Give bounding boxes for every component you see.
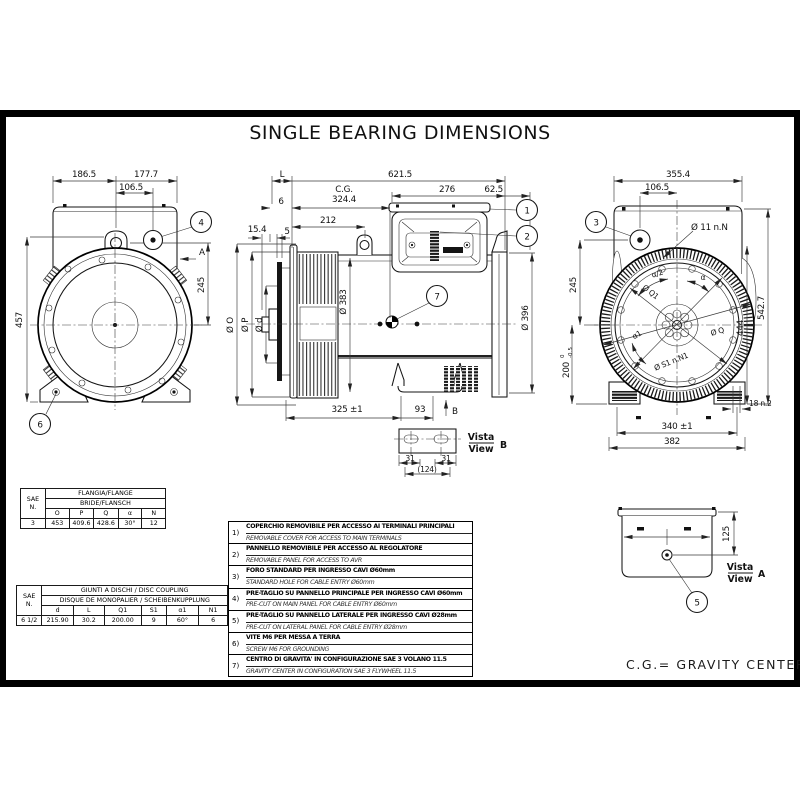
dim-444: 444	[736, 319, 746, 336]
coupling-data-row: 6 1/2 215.90 30.2 200.00 9 60° 6	[17, 616, 228, 626]
svg-text:2: 2	[524, 233, 529, 243]
val-q1: 200.00	[104, 616, 141, 626]
dim-124: (124)	[417, 465, 436, 474]
val-l: 30.2	[73, 616, 104, 626]
cg-label: C.G.	[335, 185, 353, 195]
view-a-detail: 125 Vista View A 5	[618, 507, 766, 613]
side-view-drawing: L 621.5 276 62.5 C.G. 324.4 6 212 15.4 5	[246, 170, 538, 421]
coupling-header-en: GIUNTI A DISCHI / DISC COUPLING	[42, 586, 228, 596]
screw-dot	[162, 204, 166, 208]
view-b-letter: B	[500, 440, 507, 451]
col-p: P	[69, 509, 93, 519]
front-view-drawing: 186.5 177.7 106.5 457 245 A 4	[15, 170, 212, 435]
dim-621-5: 621.5	[388, 170, 412, 180]
alpha: α	[701, 273, 706, 282]
vista-label-b: Vista	[468, 432, 494, 443]
val-alpha: 30°	[118, 519, 142, 529]
svg-text:200: 200	[562, 361, 572, 378]
dia-p: Ø P	[240, 318, 251, 332]
val-o: 453	[45, 519, 69, 529]
terminal-box-lid	[389, 203, 490, 212]
flange-header-fr: BRIDE/FLANSCH	[45, 499, 165, 509]
col-alpha: α	[118, 509, 142, 519]
note-item-1: 1) COPERCHIO REMOVIBILE PER ACCESSO AI T…	[229, 522, 472, 544]
dim-62-5: 62.5	[484, 185, 503, 195]
note-item-7: 7) CENTRO DI GRAVITA' IN CONFIGURAZIONE …	[229, 655, 472, 676]
dim-93: 93	[415, 405, 426, 415]
svg-text:7: 7	[434, 293, 439, 303]
val-n: 12	[142, 519, 166, 529]
dim-18: 18 n.2	[749, 399, 772, 408]
dim-324-4: 324.4	[332, 195, 357, 205]
col-d: d	[42, 606, 73, 616]
coupling-disc	[277, 262, 282, 381]
dim-200-tol: 200 0 -0.5	[560, 347, 574, 378]
col-q: Q	[94, 509, 118, 519]
flange-sae-header: SAEN.	[21, 489, 46, 519]
col-alpha1: α1	[166, 606, 199, 616]
col-n1: N1	[199, 606, 228, 616]
dim-340: 340 ±1	[661, 422, 692, 432]
avr-coil	[430, 231, 439, 261]
view-label-a: View	[727, 574, 753, 585]
dim-106-5: 106.5	[119, 183, 143, 193]
val-d: 215.90	[42, 616, 73, 626]
coupling-table: SAEN. GIUNTI A DISCHI / DISC COUPLING DI…	[16, 585, 228, 626]
dim-125: 125	[722, 526, 732, 542]
col-n: N	[142, 509, 166, 519]
dim-l: L	[280, 170, 285, 180]
vista-label-a: Vista	[727, 562, 753, 573]
drawing-canvas: 186.5 177.7 106.5 457 245 A 4	[0, 0, 800, 800]
svg-text:-0.5: -0.5	[568, 347, 574, 358]
dim-245-front: 245	[197, 277, 207, 293]
holes-note: Ø 11 n.N	[691, 222, 728, 233]
drawing-sheet: SINGLE BEARING DIMENSIONS	[0, 0, 800, 800]
flange-header-it: FLANGIA/FLANGE	[45, 489, 165, 499]
svg-text:6: 6	[37, 421, 43, 431]
view-a-direction-label: A	[199, 248, 205, 258]
balloon-1: 1	[489, 200, 538, 221]
end-bracket	[492, 252, 507, 397]
col-q1: Q1	[104, 606, 141, 616]
dim-245-rear: 245	[569, 277, 579, 293]
note-item-6: 6) VITE M6 PER MESSA A TERRASCREW M6 FOR…	[229, 633, 472, 655]
notes-table: 1) COPERCHIO REMOVIBILE PER ACCESSO AI T…	[228, 521, 473, 677]
col-s1: S1	[141, 606, 166, 616]
view-label-b: View	[468, 444, 494, 455]
note-item-2: 2) PANNELLO REMOVIBILE PER ACCESSO AL RE…	[229, 544, 472, 566]
dim-31b: 31	[441, 454, 451, 463]
flange-table: SAEN. FLANGIA/FLANGE BRIDE/FLANSCH O P Q…	[20, 488, 166, 529]
dim-177-7: 177.7	[134, 170, 158, 180]
svg-text:0: 0	[560, 354, 566, 358]
dia-396: Ø 396	[520, 305, 531, 331]
dim-542-7: 542.7	[757, 296, 767, 320]
note-item-3: 3) FORO STANDARD PER INGRESSO CAVI Ø60mm…	[229, 566, 472, 588]
val-n1: 6	[199, 616, 228, 626]
col-l: L	[73, 606, 104, 616]
coupling-header-de: DISQUE DE MONOPALIER / SCHEIBENKUPPLUNG	[42, 596, 228, 606]
svg-text:4: 4	[198, 219, 204, 229]
dim-457: 457	[15, 312, 25, 328]
val-alpha1: 60°	[166, 616, 199, 626]
dia-o: Ø O	[225, 317, 236, 333]
view-a-letter: A	[758, 569, 766, 580]
rear-view-drawing: Ø Q1 Ø Q Ø S1 n.N1 α/2 α α1 Ø 11 n.N 3	[560, 170, 772, 451]
view-b-detail: 31 31 (124) Vista View B	[394, 429, 507, 477]
flange-data-row: 3 453 409.6 428.6 30° 12	[21, 519, 166, 529]
dim-276: 276	[439, 185, 456, 195]
view-b-direction-label: B	[452, 407, 458, 417]
dim-355-4: 355.4	[666, 170, 691, 180]
gravity-center-symbol	[386, 316, 398, 328]
val-sae2: 6 1/2	[17, 616, 42, 626]
dim-186-5: 186.5	[72, 170, 96, 180]
val-sae: 3	[21, 519, 46, 529]
screw-dot	[63, 204, 67, 208]
col-o: O	[45, 509, 69, 519]
coupling-sae-header: SAEN.	[17, 586, 42, 616]
dim-5: 5	[284, 227, 289, 237]
dia-383: Ø 383	[338, 289, 349, 314]
avr-connector	[443, 247, 463, 253]
dim-6: 6	[278, 197, 284, 207]
val-q: 428.6	[94, 519, 118, 529]
note-item-5: 5) PRE-TAGLIO SU PANNELLO LATERALE PER I…	[229, 611, 472, 633]
cable-glands	[444, 366, 478, 392]
dim-31a: 31	[405, 454, 415, 463]
dim-325: 325 ±1	[331, 405, 362, 415]
gravity-center-legend: C.G.= GRAVITY CENTER	[626, 657, 800, 672]
val-s1: 9	[141, 616, 166, 626]
svg-text:3: 3	[593, 219, 598, 229]
val-p: 409.6	[69, 519, 93, 529]
svg-text:1: 1	[524, 207, 529, 217]
dim-382: 382	[664, 437, 680, 447]
note-item-4: 4) PRE-TAGLIO SU PANNELLO PRINCIPALE PER…	[229, 589, 472, 611]
dim-212: 212	[320, 216, 336, 226]
dim-106-5-rear: 106.5	[645, 183, 669, 193]
svg-text:5: 5	[694, 599, 699, 609]
dim-15-4: 15.4	[248, 225, 267, 235]
